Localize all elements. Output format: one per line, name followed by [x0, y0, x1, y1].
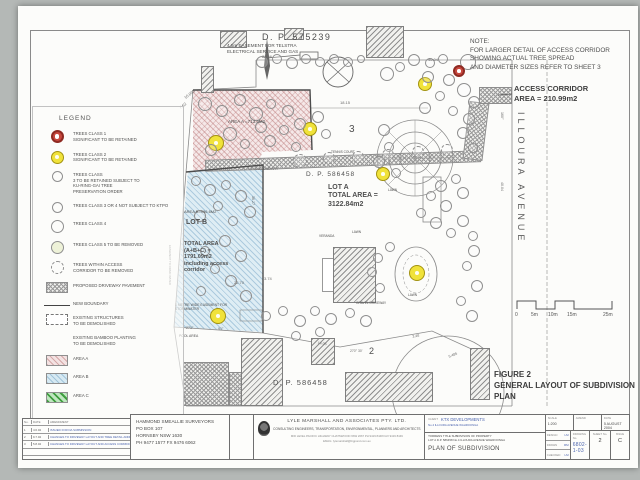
scale-tick-label: 15m: [567, 312, 577, 318]
tree-symbol: [293, 154, 307, 168]
tree-symbol: [435, 180, 447, 192]
legend-item-label: TREES CLASS 4: [73, 220, 106, 227]
legend-item-label: TREES CLASS 2 SIGNIFICANT TO BE RETAINED: [73, 151, 137, 163]
tree-symbol: [191, 176, 201, 186]
tree-symbol: [430, 217, 442, 229]
tree-symbol: [443, 74, 455, 86]
legend-item-label: PROPOSED DRIVEWAY PAVEMENT: [73, 282, 145, 289]
tree-symbol: [223, 127, 237, 141]
tree-symbol: [426, 191, 436, 201]
revision-header-row: No. DATE AMENDMENT: [23, 419, 131, 426]
legend-title: LEGEND: [59, 115, 179, 122]
dimension-label: 36.27: [251, 196, 255, 205]
plan-label: 4.5m EASEMENT FOR TELSTRA ELECTRICAL SER…: [227, 43, 298, 54]
legend-item-label: EXISTING STRUCTURES TO BE DEMOLISHED: [73, 314, 124, 326]
tree-symbol: [291, 331, 301, 341]
plan-label: 3: [349, 124, 355, 136]
plan-label: GRAVEL DRIVEWAY: [356, 302, 386, 306]
consultant-address: MID LEVEL PACIFIC HIGHWAY CHATSWOOD NSW …: [272, 434, 422, 438]
dimension-label: 160°: [500, 112, 504, 119]
tree-symbol: [294, 315, 306, 327]
tree-symbol: [468, 96, 480, 108]
tree-symbol: [261, 311, 271, 321]
client-name: KTX DEVELOPMENTS: [441, 417, 485, 422]
legend-item: TREES CLASS 3 OR 4 NOT SUBJECT TO KTPO: [41, 202, 179, 213]
tree-symbol: [466, 310, 478, 322]
dimension-label: 40.04: [500, 182, 504, 191]
legend-items: TREES CLASS 1 SIGNIFICANT TO BE RETAINED…: [41, 130, 179, 403]
legend-item-label: TREES CLASS 1 SIGNIFICANT TO BE RETAINED: [73, 130, 137, 142]
tree-symbol: [422, 71, 434, 83]
legend-item-label: EXISTING BAMBOO PLANTING TO BE DEMOLISHE…: [73, 334, 136, 346]
revision-row: 3 5.8.04 CHANGES TO DRIVEWAY LAYOUT AND …: [23, 441, 131, 448]
tree-symbol: [456, 296, 466, 306]
dimension-label: 270° 30': [350, 349, 362, 353]
surveyor-block: HAMMOND SMEALLIE SURVEYORS PO BOX 107 HO…: [131, 415, 230, 459]
tree-symbol: [221, 180, 231, 190]
tree-symbol: [235, 250, 247, 262]
dimension-label: 40.04: [428, 57, 438, 62]
tree-symbol: [419, 102, 431, 114]
proposed-driveway-south: [183, 362, 229, 406]
tree-symbol: [408, 54, 420, 66]
legend-symbol-icon: [51, 241, 64, 254]
legend-item-label: AREA A: [73, 355, 88, 362]
project-cell: TORRENS TITLE SUBDIVISION OF PROPERTY LO…: [425, 433, 545, 459]
consultant-block: LYLE MARSHALL AND ASSOCIATES PTY. LTD. C…: [254, 415, 425, 459]
tree-symbol: [457, 83, 471, 97]
issue-cell: ISSUE C: [611, 431, 629, 459]
plan-label: VERANDA: [319, 235, 334, 239]
plan-label: D. P. 586458: [273, 378, 328, 387]
plan-label: 2: [369, 346, 374, 357]
figure-caption: FIGURE 2 GENERAL LAYOUT OF SUBDIVISION P…: [494, 370, 635, 402]
tree-symbol: [471, 280, 483, 292]
tree-symbol: [216, 105, 228, 117]
legend-symbol-icon: [46, 373, 68, 384]
tree-symbol: [357, 55, 365, 63]
tree-symbol: [457, 187, 469, 199]
tree-symbol: [266, 99, 276, 109]
drawing-title: PLAN OF SUBDIVISION: [428, 446, 542, 452]
legend-symbol-icon: [52, 202, 63, 213]
plan-label: AREA A =713.4M2: [228, 119, 265, 124]
tree-symbol: [205, 144, 217, 156]
legend-symbol-icon: [46, 314, 68, 325]
revision-row: 1 4.6.04 ISSUED FOR DA SUBMISSION: [23, 426, 131, 433]
tree-symbol: [244, 206, 256, 218]
legend-symbol-icon: [51, 261, 64, 274]
dimension-label: 18.15: [340, 100, 350, 105]
tree-symbol: [286, 57, 298, 69]
legend-item: TREES CLASS 4: [41, 220, 179, 233]
tree-symbol: [448, 106, 458, 116]
scale-tick-label: 10m: [548, 312, 558, 318]
dimension-label: 28.06: [262, 54, 272, 59]
plan-label: D. P. 575239: [262, 32, 331, 43]
tree-symbol: [282, 105, 294, 117]
tree-symbol: [360, 315, 372, 327]
tree-symbol: [278, 306, 288, 316]
revision-rows: 1 4.6.04 ISSUED FOR DA SUBMISSION 2 9.7.…: [23, 426, 131, 462]
plan-label: AREA B=996.6M2: [184, 210, 216, 215]
dimension-label: 91°: [218, 327, 223, 331]
tree-symbol: [343, 57, 353, 67]
revision-row: [23, 449, 131, 456]
tree-symbol: [457, 215, 469, 227]
legend-symbol-icon: [51, 334, 64, 347]
tree-symbol: [453, 65, 465, 77]
legend-item: AREA B: [41, 373, 179, 384]
building-to-demolish: [470, 348, 490, 400]
legend-item-label: AREA B: [73, 373, 89, 380]
legend-item-label: AREA C: [73, 392, 89, 399]
consultant-email: EMAIL: lylemarshall@bigpond.com.au: [272, 439, 422, 443]
tree-symbol: [468, 231, 478, 241]
tree-symbol: [382, 149, 394, 161]
tree-symbol: [329, 54, 339, 64]
plan-label: D. P. 586458: [306, 171, 355, 179]
plan-label: TOTAL AREA (A+B+C) = 1791.09m2 including…: [184, 241, 228, 274]
legend-symbol-icon: [51, 151, 64, 164]
revision-row: 2 9.7.04 CHANGES TO DRIVEWAY LAYOUT AND …: [23, 434, 131, 441]
tree-symbol: [380, 67, 394, 81]
tree-symbol: [385, 242, 395, 252]
tree-symbol: [315, 57, 325, 67]
client-cell: CLIENTKTX DEVELOPMENTS No.4 ILLOURA AVEN…: [425, 415, 545, 433]
tree-symbol: [375, 283, 385, 293]
access-corridor-label: ACCESS CORRIDOR AREA = 210.99m2: [514, 84, 588, 104]
legend-item: AREA A: [41, 355, 179, 366]
legend-item: NEW BOUNDARY: [41, 300, 179, 307]
client-address: No.4 ILLOURA AVENUE WAHROONGA: [428, 423, 542, 427]
amend-cell: AMEND: [574, 415, 602, 430]
tree-symbol: [373, 253, 383, 263]
tree-symbol: [468, 143, 478, 153]
tree-symbol: [440, 200, 452, 212]
tree-symbol: [435, 91, 445, 101]
tree-symbol: [204, 184, 216, 196]
drafting-roles-cell: DESIGNLM DRAWNRM CHECKEDLM: [546, 431, 571, 459]
tree-symbol: [196, 286, 206, 296]
tree-symbol: [457, 127, 469, 139]
plan-label: LAWN: [388, 189, 397, 193]
project-line2: LOT A D.P. 586458 No.4 ILLOURA AVENUE WA…: [428, 439, 542, 443]
tree-symbol: [321, 129, 331, 139]
tree-symbol: [301, 54, 311, 64]
title-block: HAMMOND SMEALLIE SURVEYORS PO BOX 107 HO…: [130, 414, 630, 460]
tree-symbol: [345, 308, 355, 318]
tree-symbol: [279, 125, 289, 135]
tree-symbol: [240, 139, 250, 149]
tree-symbol: [376, 167, 390, 181]
tree-symbol: [441, 144, 453, 156]
fields-block: SCALE 1:200 AMEND DATE 5 AUGUST 2004 DES…: [546, 415, 629, 459]
legend-item: TREES CLASS 1 SIGNIFICANT TO BE RETAINED: [41, 130, 179, 143]
consultant-disciplines: CONSULTING ENGINEERS, TRANSPORTATION, EN…: [272, 427, 422, 431]
dimension-label: 22.70: [234, 280, 244, 285]
access-corridor-street-bar: [479, 87, 512, 104]
tree-symbol: [264, 135, 276, 147]
legend-item: TREES WITHIN ACCESS CORRIDOR TO BE REMOV…: [41, 261, 179, 274]
revision-row: [23, 456, 131, 462]
client-label: CLIENT: [428, 417, 438, 421]
tree-symbol: [240, 290, 252, 302]
legend-item-label: TREES CLASS 3 OR 4 NOT SUBJECT TO KTPO: [73, 202, 168, 209]
street-name-illoura-avenue: ILLOURA AVENUE: [516, 112, 526, 380]
legend-item: TREES CLASS 3 TO BE RETAINED SUBJECT TO …: [41, 171, 179, 194]
plan-label: LOT B: [186, 219, 207, 227]
tree-symbol: [310, 306, 320, 316]
legend-item: EXISTING BAMBOO PLANTING TO BE DEMOLISHE…: [41, 334, 179, 347]
tree-symbol: [446, 228, 456, 238]
building-to-demolish: [241, 338, 283, 406]
tree-symbol: [325, 313, 337, 325]
tree-symbol: [438, 54, 448, 64]
building-to-demolish: [345, 372, 433, 402]
consultant-name: LYLE MARSHALL AND ASSOCIATES PTY. LTD.: [272, 419, 422, 424]
legend-item-label: TREES CLASS 5 TO BE REMOVED: [73, 241, 143, 248]
tree-symbol: [412, 146, 424, 158]
legend-symbol-icon: [46, 392, 68, 403]
dimension-label: 13.99 BOUNDARY: [248, 167, 278, 171]
title-block-spacer: [230, 415, 254, 459]
tree-symbol: [367, 267, 377, 277]
drawing-number-cell: DRAWING No. 6802-1-03: [571, 431, 590, 459]
legend-symbol-icon: [51, 130, 64, 143]
tree-symbol: [463, 113, 475, 125]
tree-symbol: [228, 216, 238, 226]
consultant-logo-icon: [258, 421, 270, 436]
tree-symbol: [416, 208, 426, 218]
building-to-demolish: [366, 26, 404, 58]
tree-symbol: [291, 142, 301, 152]
tree-symbol: [315, 327, 325, 337]
tree-symbol: [395, 62, 405, 72]
tree-symbol: [462, 261, 472, 271]
scale-tick-label: 25m: [603, 312, 613, 318]
date-cell: DATE 5 AUGUST 2004: [602, 415, 629, 430]
legend-box: LEGEND TREES CLASS 1 SIGNIFICANT TO BE R…: [32, 106, 184, 424]
tree-symbol: [294, 118, 306, 130]
plan-label: LAWN: [408, 294, 417, 298]
building-to-demolish: [201, 66, 214, 93]
tree-symbol: [409, 265, 425, 281]
legend-item: AREA C: [41, 392, 179, 403]
plan-label: LOT A TOTAL AREA = 3122.84m2: [328, 184, 378, 209]
legend-item-label: NEW BOUNDARY: [73, 300, 109, 307]
tree-symbol: [391, 168, 401, 178]
scale-tick-label: 5m: [531, 312, 538, 318]
tree-symbol: [235, 190, 247, 202]
tree-symbol: [234, 94, 246, 106]
dimension-label: 3.74: [264, 276, 272, 281]
scanned-subdivision-plan: { "colors":{"area_a_pink":"#f3e2e2","are…: [0, 0, 640, 480]
legend-item: PROPOSED DRIVEWAY PAVEMENT: [41, 282, 179, 293]
tree-symbol: [468, 245, 480, 257]
corridor-note: NOTE: FOR LARGER DETAIL OF ACCESS CORRID…: [470, 38, 610, 73]
dimension-label: 271°: [186, 326, 193, 330]
revision-table: No. DATE AMENDMENT 1 4.6.04 ISSUED FOR D…: [22, 418, 132, 460]
legend-symbol-icon: [44, 305, 70, 306]
legend-item: TREES CLASS 2 SIGNIFICANT TO BE RETAINED: [41, 151, 179, 164]
tree-symbol: [272, 54, 282, 64]
scale-cell: SCALE 1:200: [546, 415, 574, 430]
scale-tick-label: 0: [515, 312, 518, 318]
tree-symbol: [312, 111, 324, 123]
legend-item: EXISTING STRUCTURES TO BE DEMOLISHED: [41, 314, 179, 326]
tree-symbol: [378, 124, 390, 136]
legend-symbol-icon: [46, 282, 68, 293]
legend-item-label: TREES WITHIN ACCESS CORRIDOR TO BE REMOV…: [73, 261, 133, 273]
plan-label: LAWN: [352, 231, 361, 235]
legend-item-label: TREES CLASS 3 TO BE RETAINED SUBJECT TO …: [73, 171, 140, 194]
tree-symbol: [198, 97, 212, 111]
legend-symbol-icon: [52, 171, 63, 182]
tree-symbol: [451, 174, 461, 184]
client-project-block: CLIENTKTX DEVELOPMENTS No.4 ILLOURA AVEN…: [425, 415, 546, 459]
plan-label: TENNIS COURT: [331, 151, 355, 155]
sheet-number-cell: SHEET No. 2: [590, 431, 611, 459]
legend-symbol-icon: [51, 220, 64, 233]
legend-symbol-icon: [46, 355, 68, 366]
legend-item: TREES CLASS 5 TO BE REMOVED: [41, 241, 179, 254]
